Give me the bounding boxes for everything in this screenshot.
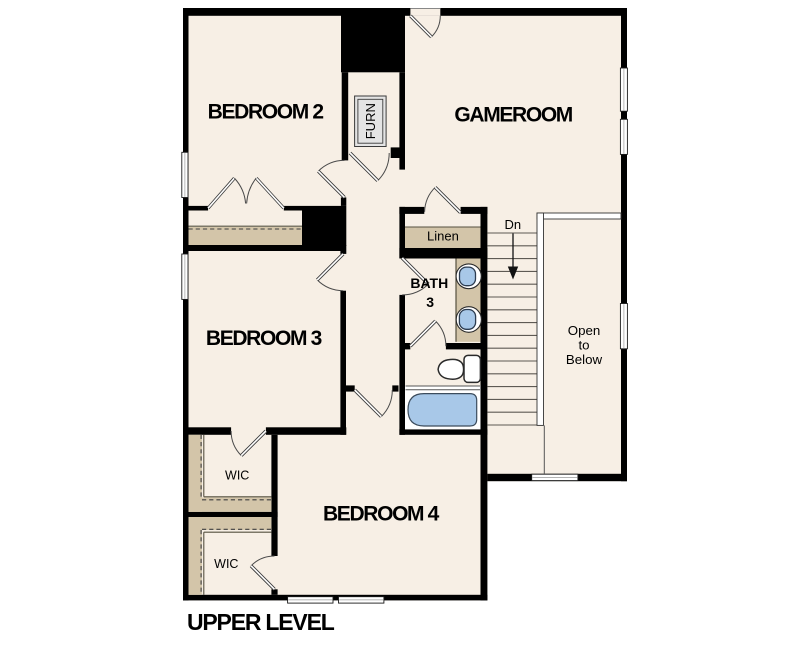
svg-text:UPPER LEVEL: UPPER LEVEL	[187, 609, 335, 635]
svg-text:Below: Below	[566, 352, 603, 367]
svg-text:WIC: WIC	[214, 557, 238, 571]
svg-text:GAMEROOM: GAMEROOM	[454, 104, 572, 127]
svg-text:Open: Open	[568, 323, 601, 338]
svg-text:BEDROOM 2: BEDROOM 2	[208, 101, 324, 124]
svg-text:BEDROOM 3: BEDROOM 3	[206, 327, 322, 350]
svg-text:Dn: Dn	[504, 217, 521, 232]
svg-text:Linen: Linen	[427, 228, 459, 243]
svg-text:to: to	[578, 337, 589, 352]
svg-text:WIC: WIC	[225, 469, 249, 483]
svg-text:FURN: FURN	[363, 103, 378, 139]
svg-text:3: 3	[426, 294, 434, 310]
svg-text:BEDROOM 4: BEDROOM 4	[323, 502, 440, 525]
svg-text:BATH: BATH	[410, 275, 448, 291]
